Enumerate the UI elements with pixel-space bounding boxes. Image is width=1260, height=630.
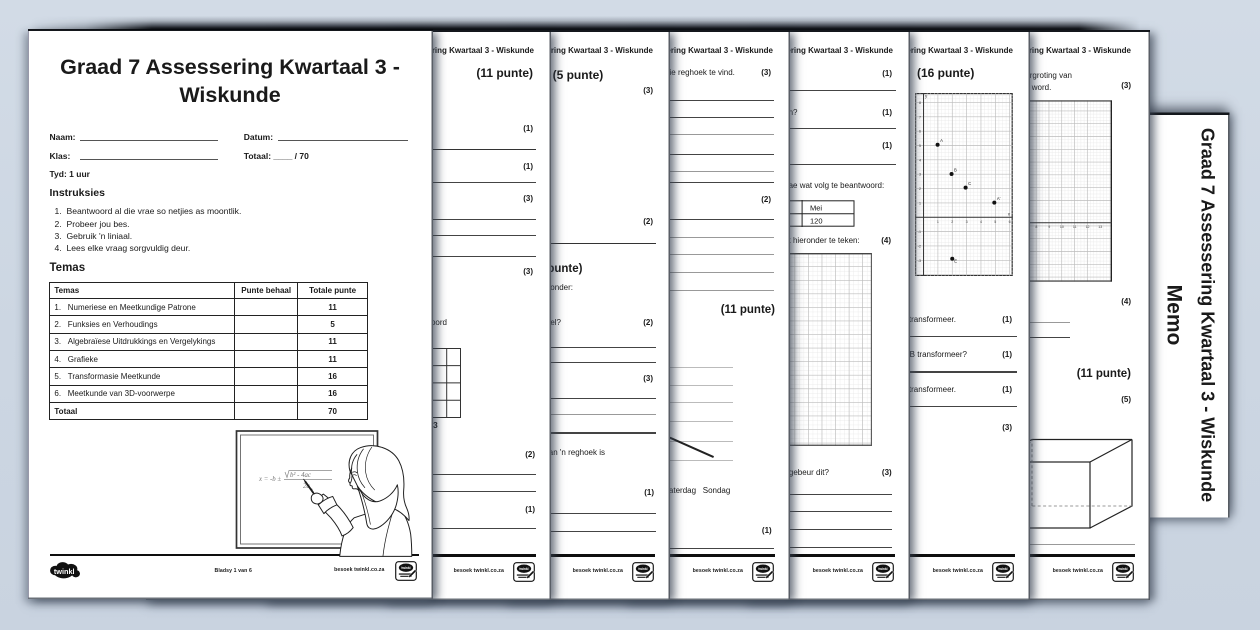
- svg-text:6: 6: [919, 129, 921, 133]
- svg-text:twinkl: twinkl: [54, 567, 75, 576]
- svg-text:B: B: [954, 167, 957, 172]
- svg-text:-3: -3: [917, 258, 920, 262]
- svg-text:10: 10: [1060, 225, 1064, 229]
- svg-text:3: 3: [965, 219, 967, 223]
- svg-text:twinkl: twinkl: [758, 567, 767, 571]
- svg-text:twinkl: twinkl: [878, 567, 887, 571]
- svg-text:7: 7: [919, 115, 921, 119]
- svg-text:Mei: Mei: [810, 203, 822, 212]
- svg-text:4: 4: [979, 219, 981, 223]
- svg-text:b² - 4ac: b² - 4ac: [290, 472, 311, 479]
- svg-text:-1: -1: [917, 230, 920, 234]
- svg-text:120: 120: [810, 216, 823, 225]
- svg-text:11: 11: [1073, 225, 1077, 229]
- svg-text:1: 1: [936, 219, 938, 223]
- svg-text:C: C: [968, 181, 971, 186]
- svg-text:x = -b ±: x = -b ±: [258, 476, 281, 483]
- svg-text:4: 4: [919, 158, 921, 162]
- svg-text:twinkl: twinkl: [638, 567, 647, 571]
- svg-text:9: 9: [1048, 225, 1050, 229]
- svg-text:5: 5: [994, 219, 996, 223]
- svg-text:2: 2: [919, 187, 921, 191]
- svg-text:twinkl: twinkl: [1118, 567, 1127, 571]
- svg-text:A': A': [996, 196, 1000, 201]
- svg-text:5: 5: [919, 144, 921, 148]
- svg-text:twinkl: twinkl: [998, 567, 1007, 571]
- svg-text:3: 3: [919, 172, 921, 176]
- svg-text:twinkl: twinkl: [519, 567, 528, 571]
- svg-text:13: 13: [1098, 225, 1102, 229]
- svg-text:12: 12: [1086, 225, 1090, 229]
- svg-text:8: 8: [1035, 225, 1037, 229]
- svg-text:-2: -2: [917, 244, 920, 248]
- svg-text:2: 2: [951, 219, 953, 223]
- svg-text:twinkl: twinkl: [401, 566, 410, 570]
- svg-text:6: 6: [1008, 219, 1010, 223]
- svg-text:A: A: [940, 138, 943, 143]
- svg-text:1: 1: [919, 201, 921, 205]
- svg-text:E: E: [954, 258, 957, 263]
- svg-text:8: 8: [919, 100, 921, 104]
